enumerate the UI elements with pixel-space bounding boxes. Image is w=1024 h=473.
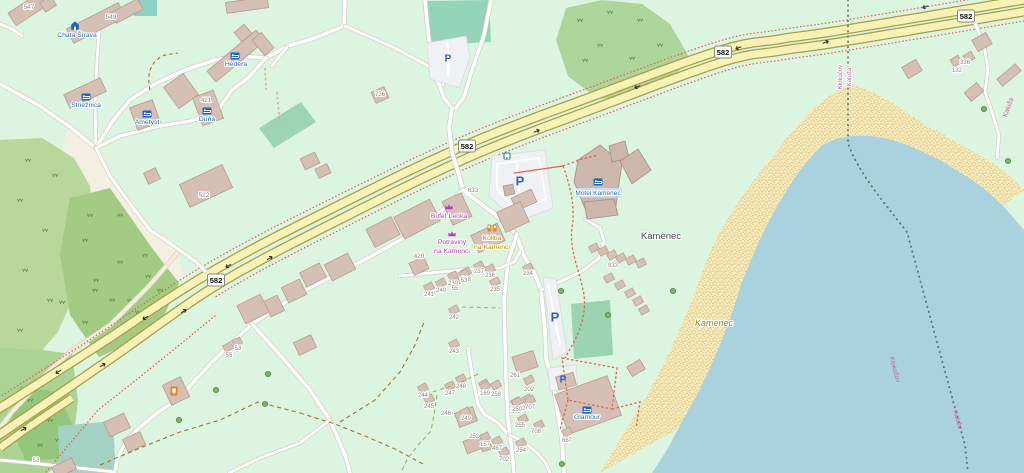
- svg-text:132: 132: [952, 68, 963, 74]
- svg-text:667: 667: [562, 438, 573, 444]
- svg-text:254: 254: [516, 448, 527, 454]
- svg-text:Kaluža: Kaluža: [847, 67, 853, 86]
- svg-text:708: 708: [531, 429, 542, 435]
- svg-text:Hedera: Hedera: [225, 61, 248, 68]
- svg-text:235: 235: [490, 287, 501, 293]
- svg-text:933: 933: [608, 263, 619, 269]
- svg-text:248: 248: [456, 384, 467, 390]
- svg-text:53: 53: [33, 458, 40, 464]
- svg-text:336: 336: [960, 60, 971, 66]
- svg-text:Chata Šírava: Chata Šírava: [57, 30, 97, 39]
- svg-text:Kamenec: Kamenec: [695, 318, 734, 328]
- svg-text:420: 420: [414, 253, 425, 260]
- svg-text:Striežnica: Striežnica: [71, 102, 101, 109]
- svg-text:Kamenec: Kamenec: [641, 231, 681, 242]
- svg-text:242: 242: [449, 315, 460, 321]
- svg-text:53: 53: [235, 346, 242, 352]
- svg-text:522: 522: [199, 192, 210, 199]
- svg-text:Bufet Lenka: Bufet Lenka: [431, 213, 467, 220]
- svg-text:736: 736: [375, 92, 386, 98]
- svg-text:244: 244: [418, 393, 429, 399]
- svg-text:582: 582: [960, 12, 973, 21]
- svg-text:250: 250: [512, 407, 523, 413]
- svg-text:421: 421: [201, 97, 212, 104]
- svg-text:582: 582: [210, 276, 223, 285]
- svg-text:633: 633: [468, 187, 479, 194]
- svg-text:249: 249: [461, 416, 472, 422]
- svg-text:240: 240: [436, 288, 447, 294]
- svg-text:P: P: [560, 375, 567, 386]
- svg-text:Koliba: Koliba: [483, 235, 502, 242]
- svg-text:245: 245: [424, 404, 435, 410]
- svg-text:549: 549: [106, 14, 117, 21]
- svg-text:P: P: [516, 174, 525, 189]
- svg-text:Glamour: Glamour: [574, 414, 601, 421]
- svg-text:202: 202: [524, 387, 535, 393]
- svg-text:55: 55: [226, 353, 233, 359]
- svg-text:246: 246: [441, 411, 452, 417]
- svg-text:169: 169: [480, 391, 491, 397]
- svg-text:P: P: [445, 54, 452, 65]
- svg-text:243: 243: [449, 349, 460, 355]
- svg-text:258: 258: [491, 392, 502, 398]
- svg-text:P: P: [551, 310, 560, 325]
- svg-text:252: 252: [469, 434, 480, 440]
- svg-text:Ametyst: Ametyst: [135, 119, 160, 126]
- svg-text:261: 261: [510, 373, 521, 379]
- svg-text:241: 241: [424, 292, 435, 298]
- svg-text:707: 707: [525, 405, 536, 411]
- svg-text:Klokočov: Klokočov: [838, 65, 844, 89]
- svg-text:582: 582: [717, 48, 730, 57]
- svg-text:582: 582: [461, 142, 474, 151]
- svg-text:234: 234: [523, 271, 534, 277]
- svg-text:Potraviny: Potraviny: [438, 239, 467, 246]
- svg-text:236: 236: [485, 273, 496, 279]
- svg-text:487: 487: [492, 446, 503, 452]
- svg-text:247: 247: [445, 391, 456, 397]
- svg-text:157: 157: [480, 442, 491, 448]
- svg-text:547: 547: [24, 4, 35, 11]
- svg-text:702: 702: [499, 457, 510, 463]
- svg-text:Motel Kamenec: Motel Kamenec: [575, 190, 621, 197]
- svg-text:255: 255: [515, 423, 526, 429]
- svg-text:na Kamenci: na Kamenci: [434, 248, 470, 255]
- svg-text:55: 55: [452, 286, 459, 292]
- svg-text:237: 237: [474, 269, 485, 275]
- svg-text:53: 53: [461, 278, 468, 284]
- svg-text:na Kamenci: na Kamenci: [474, 244, 510, 251]
- svg-text:Duňa: Duňa: [199, 116, 215, 123]
